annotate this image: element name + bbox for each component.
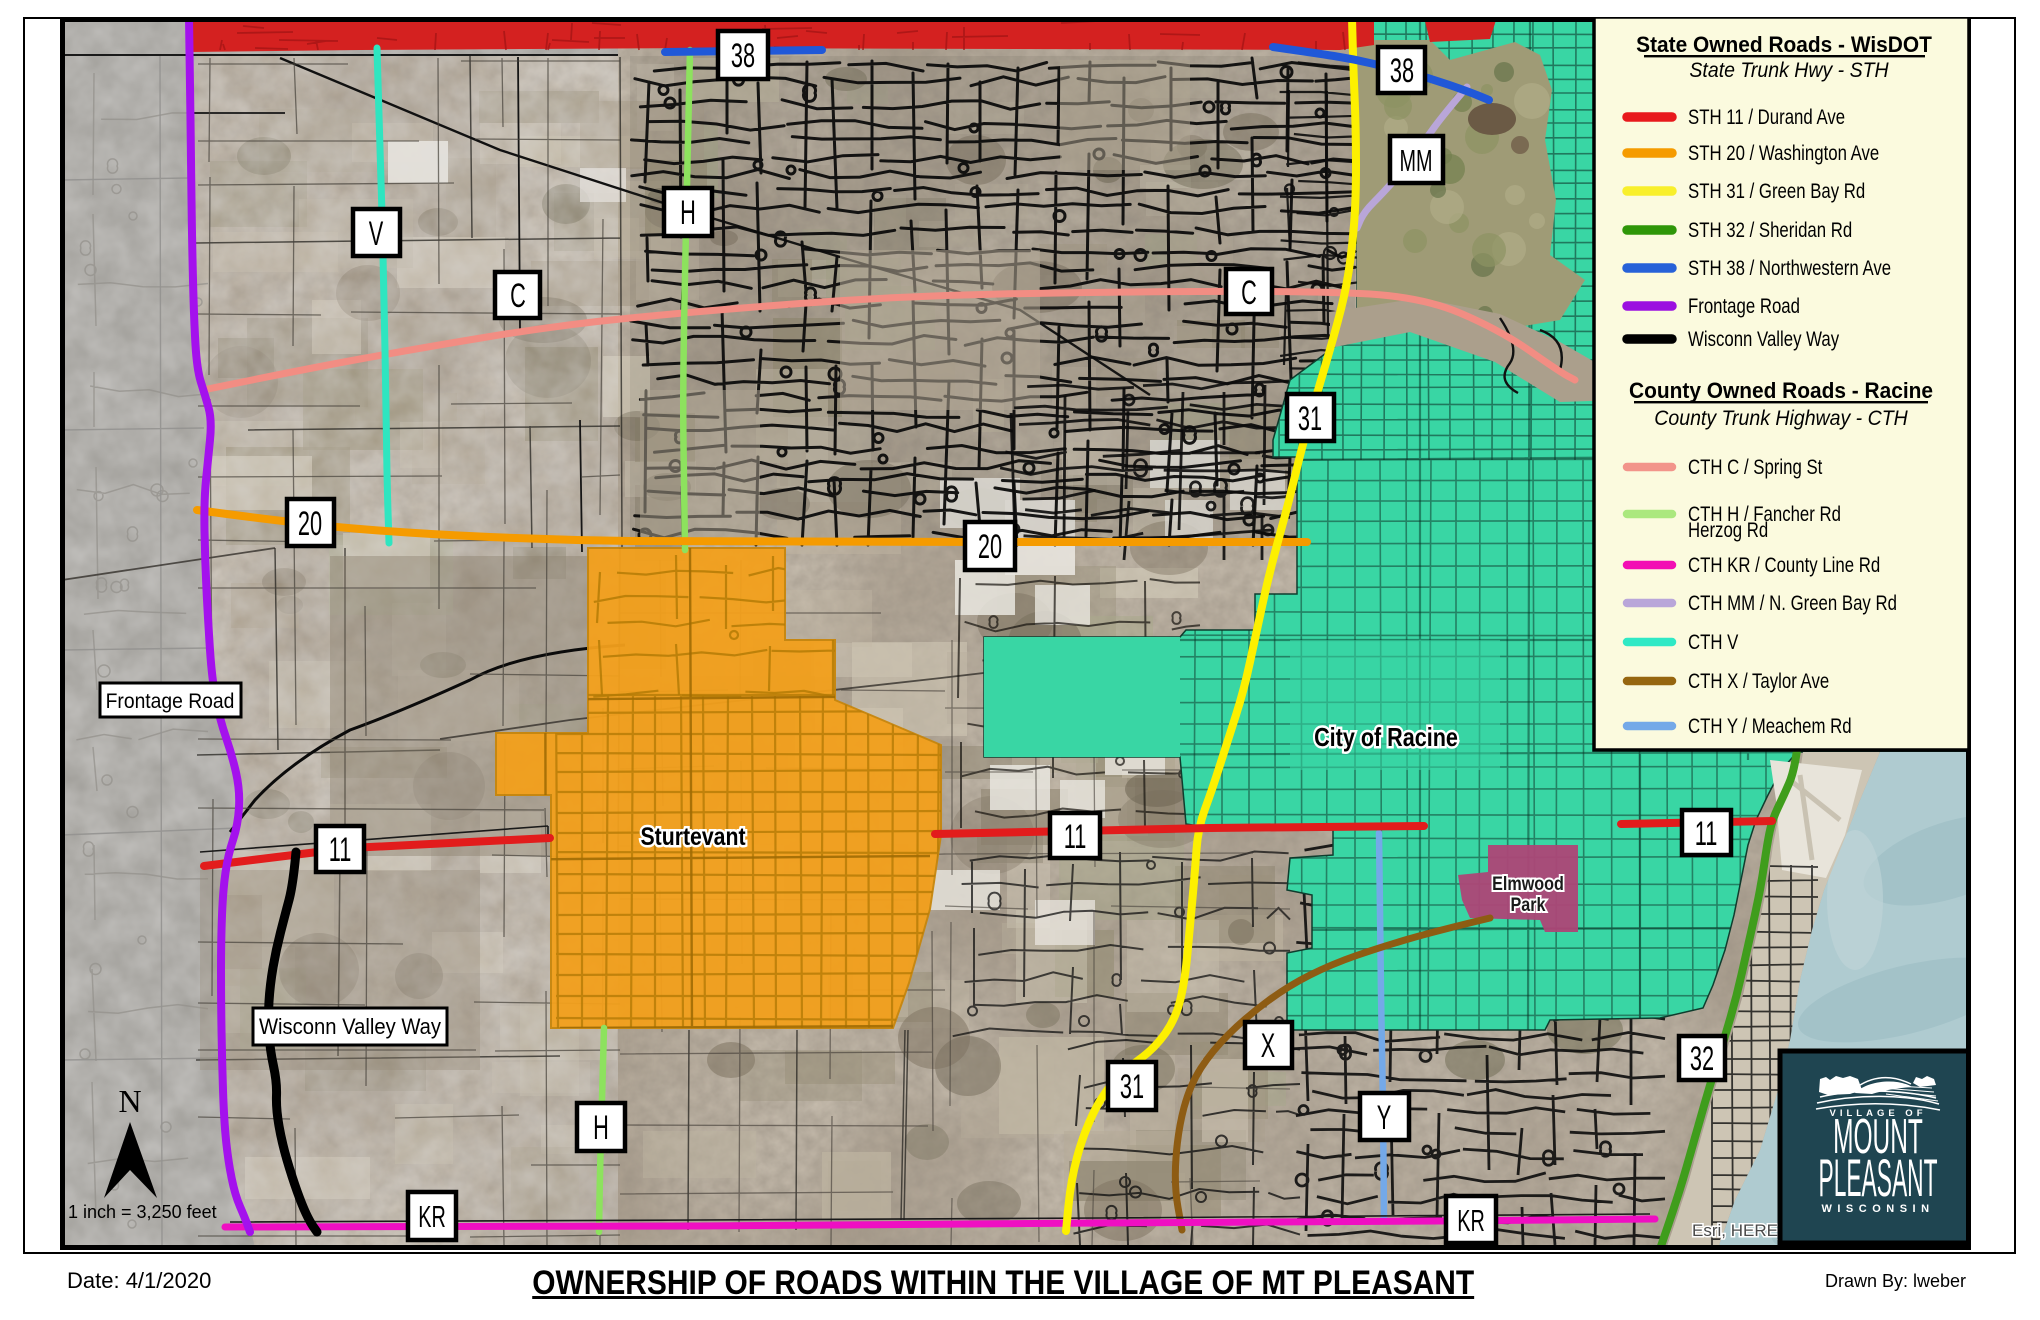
svg-text:Wisconn Valley Way: Wisconn Valley Way — [259, 1015, 442, 1039]
svg-text:31: 31 — [1120, 1068, 1144, 1106]
svg-text:C: C — [510, 277, 526, 315]
svg-text:WISCONSIN: WISCONSIN — [1821, 1203, 1934, 1215]
svg-text:County Trunk Highway - CTH: County Trunk Highway - CTH — [1654, 407, 1908, 430]
svg-text:32: 32 — [1690, 1040, 1714, 1078]
svg-text:20: 20 — [298, 505, 322, 543]
svg-text:STH 38 / Northwestern Ave: STH 38 / Northwestern Ave — [1688, 257, 1891, 280]
svg-text:11: 11 — [1064, 818, 1087, 856]
svg-text:City of Racine: City of Racine — [1314, 723, 1458, 752]
svg-text:STH 11 / Durand Ave: STH 11 / Durand Ave — [1688, 106, 1845, 129]
svg-text:Wisconn Valley Way: Wisconn Valley Way — [1688, 328, 1840, 351]
svg-text:PLEASANT: PLEASANT — [1818, 1148, 1937, 1208]
svg-text:H: H — [680, 194, 696, 232]
svg-text:31: 31 — [1298, 400, 1322, 438]
svg-text:N: N — [118, 1083, 141, 1119]
svg-text:County Owned Roads - Racine: County Owned Roads - Racine — [1629, 379, 1933, 404]
svg-text:Frontage Road: Frontage Road — [106, 690, 235, 713]
svg-text:CTH Y / Meachem Rd: CTH Y / Meachem Rd — [1688, 715, 1852, 738]
svg-text:20: 20 — [978, 528, 1002, 566]
svg-text:H: H — [593, 1109, 609, 1147]
svg-text:Sturtevant: Sturtevant — [640, 822, 745, 850]
svg-text:Frontage Road: Frontage Road — [1688, 295, 1800, 318]
svg-text:Elmwood: Elmwood — [1492, 873, 1564, 895]
svg-text:38: 38 — [731, 37, 755, 75]
svg-text:KR: KR — [418, 1198, 446, 1234]
svg-text:CTH KR / County Line Rd: CTH KR / County Line Rd — [1688, 554, 1880, 577]
svg-text:C: C — [1241, 274, 1257, 312]
svg-text:11: 11 — [1695, 815, 1718, 853]
svg-text:CTH MM / N. Green Bay Rd: CTH MM / N. Green Bay Rd — [1688, 592, 1897, 615]
svg-text:Herzog Rd: Herzog Rd — [1688, 519, 1768, 542]
svg-text:STH 32 / Sheridan Rd: STH 32 / Sheridan Rd — [1688, 219, 1852, 242]
svg-text:1 inch = 3,250 feet: 1 inch = 3,250 feet — [68, 1202, 217, 1222]
svg-text:V: V — [369, 215, 384, 253]
svg-text:Park: Park — [1510, 894, 1545, 916]
svg-text:KR: KR — [1457, 1202, 1485, 1238]
svg-text:STH 20 / Washington Ave: STH 20 / Washington Ave — [1688, 142, 1879, 165]
svg-text:CTH C / Spring St: CTH C / Spring St — [1688, 456, 1823, 479]
svg-text:STH 31 / Green Bay Rd: STH 31 / Green Bay Rd — [1688, 180, 1865, 203]
svg-text:CTH V: CTH V — [1688, 631, 1739, 654]
svg-text:CTH X / Taylor Ave: CTH X / Taylor Ave — [1688, 670, 1829, 693]
svg-text:11: 11 — [329, 831, 352, 869]
svg-text:State Trunk Hwy - STH: State Trunk Hwy - STH — [1689, 59, 1889, 82]
svg-text:38: 38 — [1390, 52, 1414, 90]
svg-text:X: X — [1261, 1027, 1276, 1065]
svg-text:State Owned Roads - WisDOT: State Owned Roads - WisDOT — [1636, 33, 1932, 58]
svg-text:MM: MM — [1399, 142, 1432, 178]
svg-text:Y: Y — [1377, 1099, 1392, 1137]
